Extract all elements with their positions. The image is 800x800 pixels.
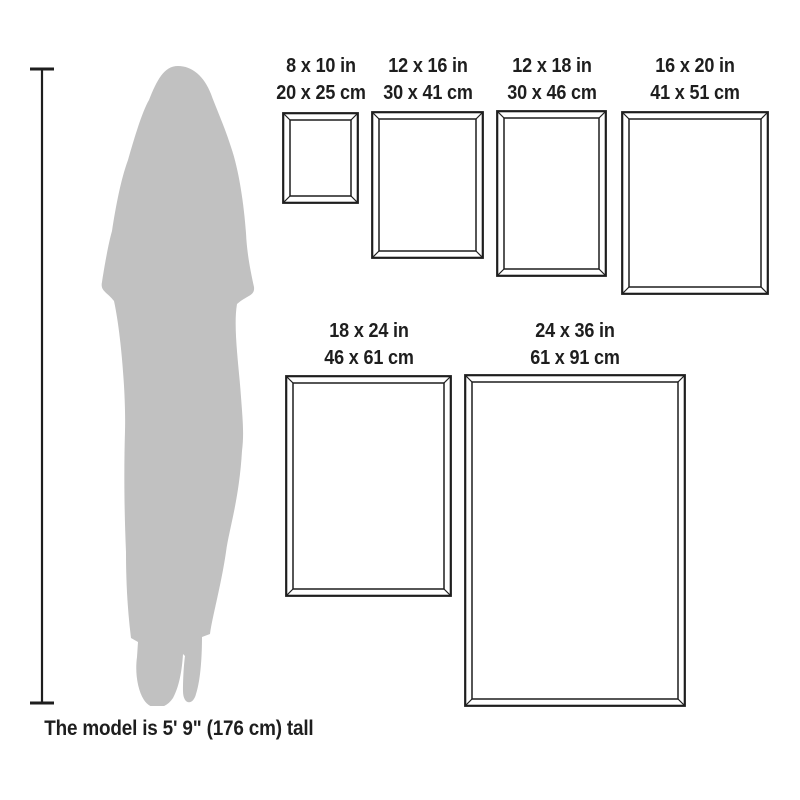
frame-outline-12x18	[496, 110, 607, 277]
frame-outline-8x10	[282, 112, 359, 204]
picture-frame-graphic	[496, 110, 607, 277]
picture-frame-graphic	[285, 375, 452, 597]
frame-size-label-12x18: 12 x 18 in 30 x 46 cm	[477, 52, 627, 106]
frame-size-cm: 41 x 51 cm	[620, 79, 770, 106]
model-silhouette	[100, 64, 258, 706]
frame-size-inches: 16 x 20 in	[620, 52, 770, 79]
frame-outline-18x24	[285, 375, 452, 597]
model-silhouette-shape	[102, 66, 254, 706]
frame-size-inches: 12 x 18 in	[477, 52, 627, 79]
frame-size-chart: 8 x 10 in 20 x 25 cm 12 x 16 in 30 x 41 …	[0, 0, 800, 800]
frame-outline-16x20	[621, 111, 769, 295]
frame-size-cm: 46 x 61 cm	[294, 344, 444, 371]
frame-size-cm: 30 x 46 cm	[477, 79, 627, 106]
picture-frame-graphic	[621, 111, 769, 295]
frame-size-cm: 61 x 91 cm	[500, 344, 650, 371]
picture-frame-graphic	[371, 111, 484, 259]
frame-size-inches: 24 x 36 in	[500, 317, 650, 344]
picture-frame-graphic	[464, 374, 686, 707]
frame-outline-12x16	[371, 111, 484, 259]
frame-size-label-24x36: 24 x 36 in 61 x 91 cm	[500, 317, 650, 371]
frame-size-label-18x24: 18 x 24 in 46 x 61 cm	[294, 317, 444, 371]
height-ruler	[29, 67, 55, 705]
picture-frame-graphic	[282, 112, 359, 204]
frame-outline-24x36	[464, 374, 686, 707]
frame-size-label-16x20: 16 x 20 in 41 x 51 cm	[620, 52, 770, 106]
frame-size-inches: 18 x 24 in	[294, 317, 444, 344]
model-height-caption: The model is 5' 9" (176 cm) tall	[44, 717, 301, 741]
